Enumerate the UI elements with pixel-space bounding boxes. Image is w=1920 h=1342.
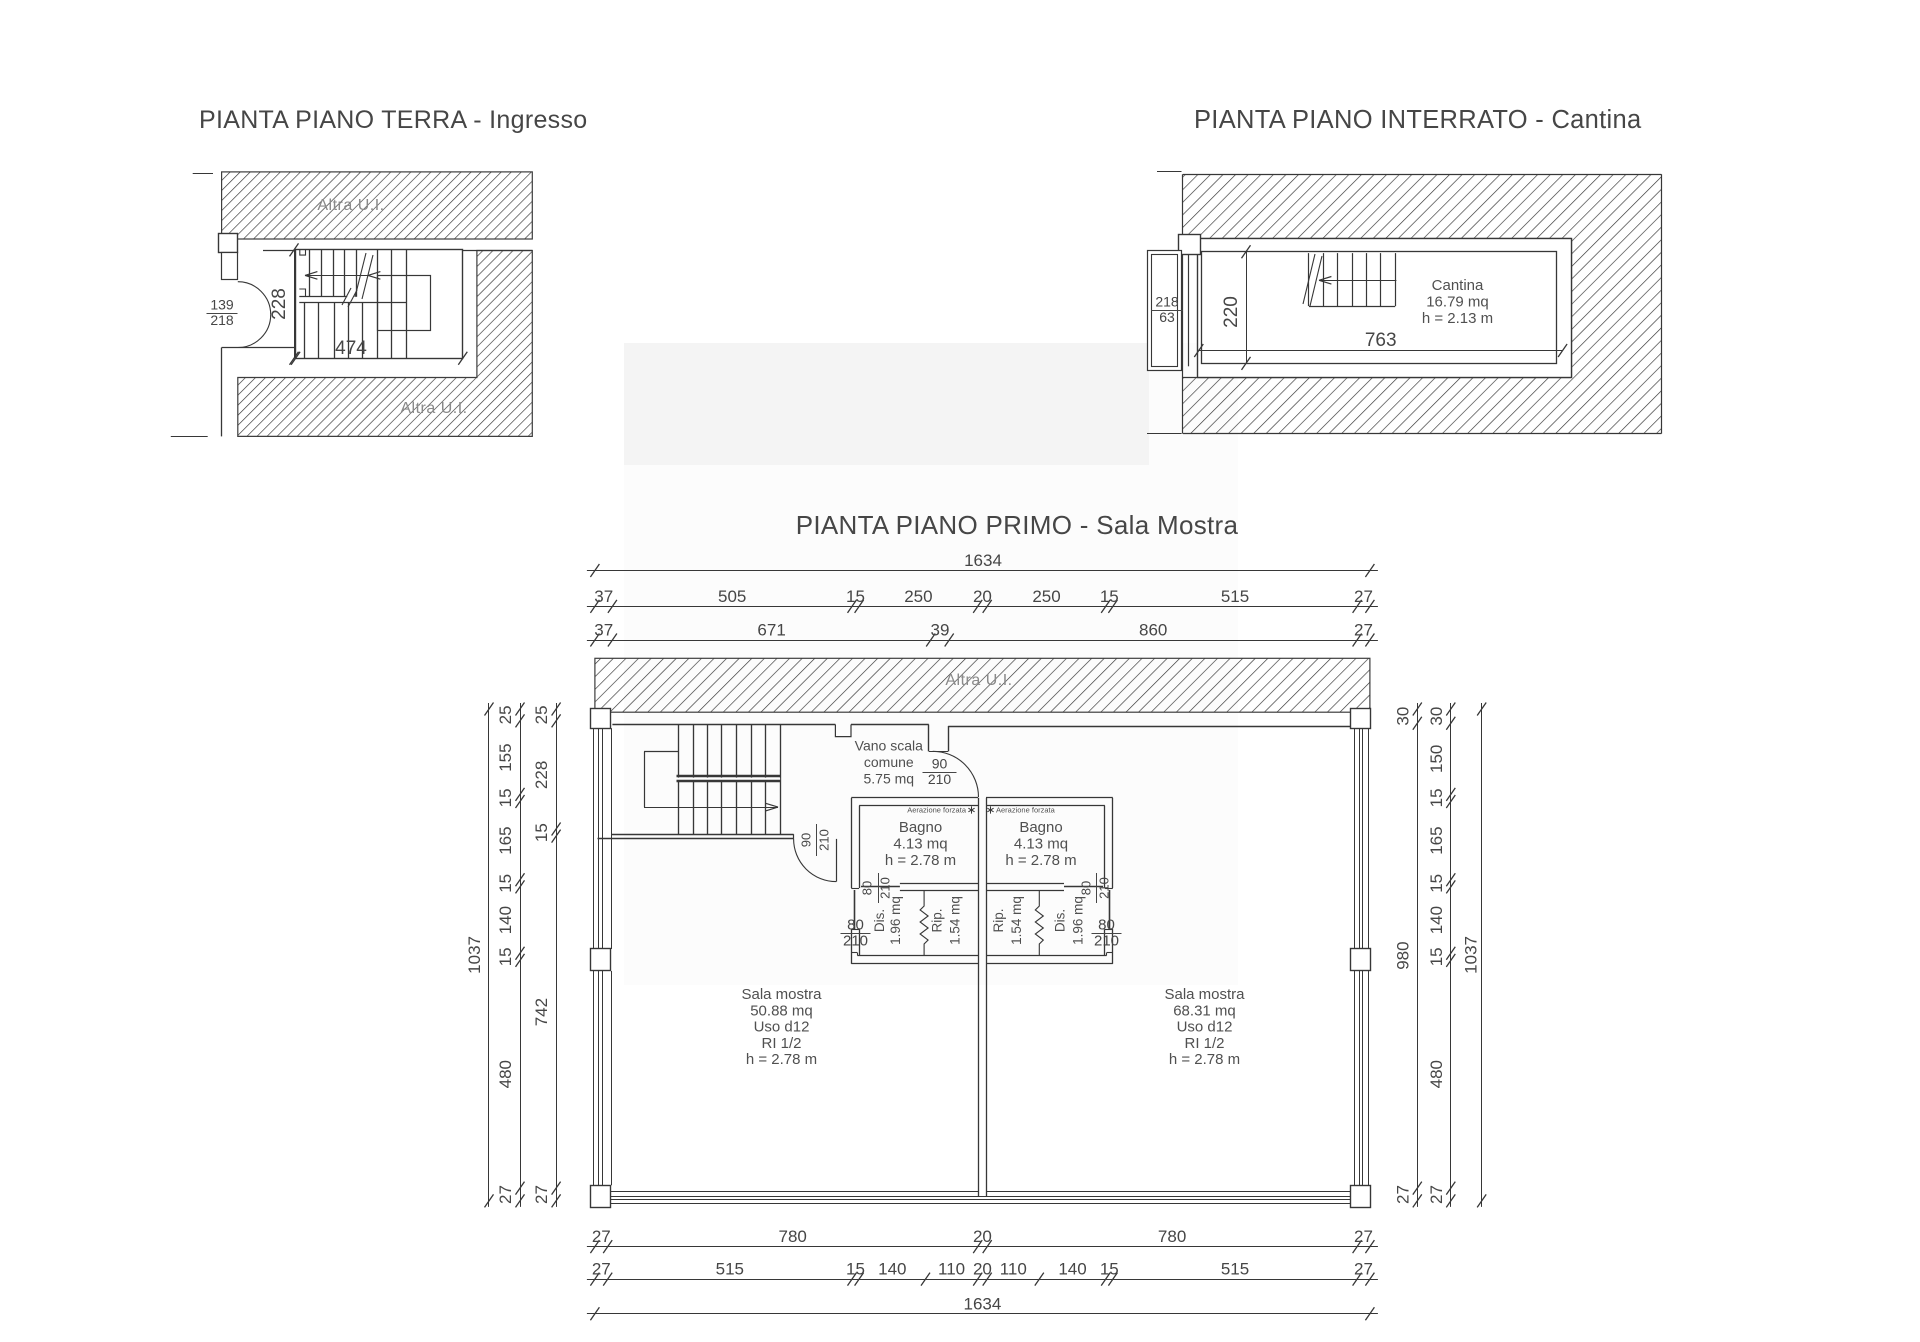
svg-text:Altra U.I.: Altra U.I. <box>400 400 467 417</box>
svg-text:140: 140 <box>1058 1260 1086 1279</box>
svg-text:210: 210 <box>877 877 892 899</box>
svg-text:228: 228 <box>532 761 551 789</box>
svg-text:780: 780 <box>779 1227 807 1246</box>
svg-text:150: 150 <box>1427 745 1446 773</box>
svg-text:Altra U.I.: Altra U.I. <box>945 672 1012 689</box>
svg-text:80: 80 <box>860 881 875 895</box>
svg-text:860: 860 <box>1139 621 1167 640</box>
svg-text:210: 210 <box>928 771 952 787</box>
svg-text:218: 218 <box>1155 294 1179 310</box>
svg-text:15: 15 <box>1100 587 1119 606</box>
svg-text:h = 2.78 m: h = 2.78 m <box>885 852 956 869</box>
svg-text:140: 140 <box>496 906 515 934</box>
svg-text:80: 80 <box>1079 881 1094 895</box>
svg-text:27: 27 <box>1393 1185 1412 1204</box>
svg-text:15: 15 <box>1427 874 1446 893</box>
svg-text:763: 763 <box>1365 330 1397 351</box>
svg-text:15: 15 <box>1427 947 1446 966</box>
svg-text:140: 140 <box>1427 906 1446 934</box>
svg-text:474: 474 <box>335 338 367 359</box>
svg-text:Bagno: Bagno <box>1019 819 1062 836</box>
svg-text:90: 90 <box>932 756 948 772</box>
svg-text:PIANTA PIANO TERRA - Ingresso: PIANTA PIANO TERRA - Ingresso <box>199 106 587 134</box>
svg-text:37: 37 <box>594 587 613 606</box>
svg-text:15: 15 <box>846 1260 865 1279</box>
svg-text:h = 2.13 m: h = 2.13 m <box>1422 310 1493 327</box>
svg-text:1.96 mq: 1.96 mq <box>1071 896 1086 945</box>
svg-text:15: 15 <box>1427 788 1446 807</box>
svg-text:Uso d12: Uso d12 <box>1177 1019 1233 1036</box>
svg-text:PIANTA PIANO PRIMO - Sala Most: PIANTA PIANO PRIMO - Sala Mostra <box>796 510 1239 540</box>
svg-text:30: 30 <box>1393 707 1412 726</box>
svg-text:Aerazione forzata: Aerazione forzata <box>907 806 967 815</box>
svg-text:139: 139 <box>210 297 234 313</box>
svg-text:165: 165 <box>496 826 515 854</box>
svg-text:Cantina: Cantina <box>1432 277 1484 294</box>
svg-text:505: 505 <box>718 587 746 606</box>
svg-text:15: 15 <box>496 874 515 893</box>
svg-text:39: 39 <box>931 621 950 640</box>
svg-text:RI 1/2: RI 1/2 <box>1184 1035 1224 1052</box>
svg-text:25: 25 <box>496 705 515 724</box>
svg-text:63: 63 <box>1159 309 1175 325</box>
svg-text:515: 515 <box>1221 1260 1249 1279</box>
svg-text:515: 515 <box>716 1260 744 1279</box>
svg-text:27: 27 <box>1427 1185 1446 1204</box>
svg-text:PIANTA PIANO INTERRATO - Canti: PIANTA PIANO INTERRATO - Cantina <box>1194 106 1642 134</box>
svg-text:25: 25 <box>532 705 551 724</box>
svg-text:Sala mostra: Sala mostra <box>1164 986 1245 1003</box>
svg-text:250: 250 <box>904 587 932 606</box>
svg-text:Dis.: Dis. <box>1053 909 1068 932</box>
svg-text:110: 110 <box>938 1260 965 1279</box>
svg-text:20: 20 <box>973 587 992 606</box>
svg-text:15: 15 <box>1100 1260 1119 1279</box>
svg-text:Aerazione forzata: Aerazione forzata <box>996 806 1056 815</box>
svg-text:742: 742 <box>532 998 551 1026</box>
svg-text:27: 27 <box>1354 587 1373 606</box>
svg-text:140: 140 <box>878 1260 906 1279</box>
svg-text:155: 155 <box>496 743 515 771</box>
svg-text:Dis.: Dis. <box>872 909 887 932</box>
svg-text:27: 27 <box>532 1185 551 1204</box>
svg-text:4.13 mq: 4.13 mq <box>1014 836 1068 853</box>
svg-text:27: 27 <box>1354 1227 1373 1246</box>
svg-text:218: 218 <box>210 312 234 328</box>
svg-text:15: 15 <box>532 823 551 842</box>
svg-text:15: 15 <box>496 947 515 966</box>
svg-text:210: 210 <box>1094 933 1119 950</box>
svg-text:90: 90 <box>799 833 814 847</box>
svg-text:515: 515 <box>1221 587 1249 606</box>
svg-text:1037: 1037 <box>1462 936 1481 974</box>
svg-text:RI 1/2: RI 1/2 <box>761 1035 801 1052</box>
svg-text:50.88 mq: 50.88 mq <box>750 1002 813 1019</box>
svg-text:comune: comune <box>864 754 914 770</box>
svg-text:220: 220 <box>1221 296 1242 328</box>
svg-text:16.79 mq: 16.79 mq <box>1426 294 1489 311</box>
svg-text:15: 15 <box>496 788 515 807</box>
svg-text:20: 20 <box>973 1227 992 1246</box>
svg-text:Sala mostra: Sala mostra <box>741 986 822 1003</box>
svg-text:27: 27 <box>496 1185 515 1204</box>
svg-text:1.96 mq: 1.96 mq <box>888 896 903 945</box>
svg-text:15: 15 <box>846 587 865 606</box>
svg-text:Rip.: Rip. <box>991 908 1006 932</box>
svg-text:Altra U.I.: Altra U.I. <box>317 197 384 214</box>
svg-text:1037: 1037 <box>465 936 484 974</box>
svg-text:Rip.: Rip. <box>930 908 945 932</box>
svg-text:110: 110 <box>1000 1260 1027 1279</box>
svg-text:27: 27 <box>592 1227 611 1246</box>
svg-text:30: 30 <box>1427 707 1446 726</box>
svg-text:210: 210 <box>816 829 831 851</box>
svg-text:h = 2.78 m: h = 2.78 m <box>1005 852 1076 869</box>
svg-text:671: 671 <box>757 621 785 640</box>
svg-text:1.54 mq: 1.54 mq <box>1009 896 1024 945</box>
svg-text:27: 27 <box>1354 621 1373 640</box>
svg-text:Bagno: Bagno <box>899 819 942 836</box>
svg-text:480: 480 <box>1427 1060 1446 1088</box>
svg-text:1634: 1634 <box>964 551 1002 570</box>
svg-text:780: 780 <box>1158 1227 1186 1246</box>
svg-text:210: 210 <box>843 933 868 950</box>
svg-text:480: 480 <box>496 1060 515 1088</box>
svg-text:Vano scala: Vano scala <box>855 738 923 754</box>
svg-text:980: 980 <box>1393 941 1412 969</box>
svg-text:80: 80 <box>847 916 864 933</box>
svg-text:h = 2.78 m: h = 2.78 m <box>746 1051 817 1068</box>
svg-text:5.75 mq: 5.75 mq <box>864 771 915 787</box>
svg-text:80: 80 <box>1098 916 1115 933</box>
svg-text:20: 20 <box>973 1260 992 1279</box>
svg-text:68.31 mq: 68.31 mq <box>1173 1002 1236 1019</box>
svg-text:4.13 mq: 4.13 mq <box>893 836 947 853</box>
svg-text:Uso d12: Uso d12 <box>754 1019 810 1036</box>
svg-text:37: 37 <box>594 621 613 640</box>
svg-text:27: 27 <box>592 1260 611 1279</box>
svg-text:1634: 1634 <box>963 1294 1001 1313</box>
svg-text:210: 210 <box>1096 877 1111 899</box>
svg-text:27: 27 <box>1354 1260 1373 1279</box>
svg-text:1.54 mq: 1.54 mq <box>948 896 963 945</box>
svg-text:165: 165 <box>1427 826 1446 854</box>
svg-text:h = 2.78 m: h = 2.78 m <box>1169 1051 1240 1068</box>
svg-text:228: 228 <box>269 288 290 320</box>
svg-text:250: 250 <box>1032 587 1060 606</box>
